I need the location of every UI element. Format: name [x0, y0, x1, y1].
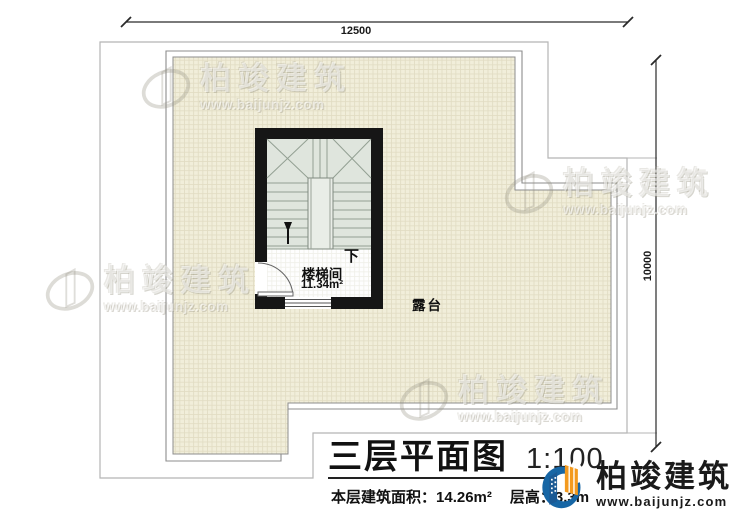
stairwell-area-label: 11.34m²	[282, 279, 362, 291]
title-underline	[328, 477, 547, 479]
dimension-right-label: 10000	[642, 204, 654, 328]
brand-name: 柏竣建筑	[596, 459, 732, 495]
window	[285, 297, 331, 309]
brand-url: www.baijunjz.com	[596, 494, 732, 509]
dimension-top-label: 12500	[296, 25, 416, 37]
terrace-label: 露台	[412, 294, 443, 314]
page-title: 三层平面图	[328, 440, 508, 474]
stair-well	[308, 178, 333, 249]
logo-building-orange	[565, 465, 578, 495]
terrace-floor	[173, 57, 611, 454]
floor-area-label: 本层建筑面积：	[331, 489, 436, 506]
brand-logo-icon	[538, 452, 590, 516]
floor-plan-page: 柏竣建筑 www.baijunjz.com 柏竣建筑 www.baijunjz.…	[0, 0, 750, 530]
logo-building-blue	[549, 472, 557, 505]
door-leaf	[258, 292, 293, 296]
floor-area-value: 14.26m²	[436, 489, 492, 506]
brand-logo: 柏竣建筑 www.baijunjz.com	[538, 452, 732, 516]
